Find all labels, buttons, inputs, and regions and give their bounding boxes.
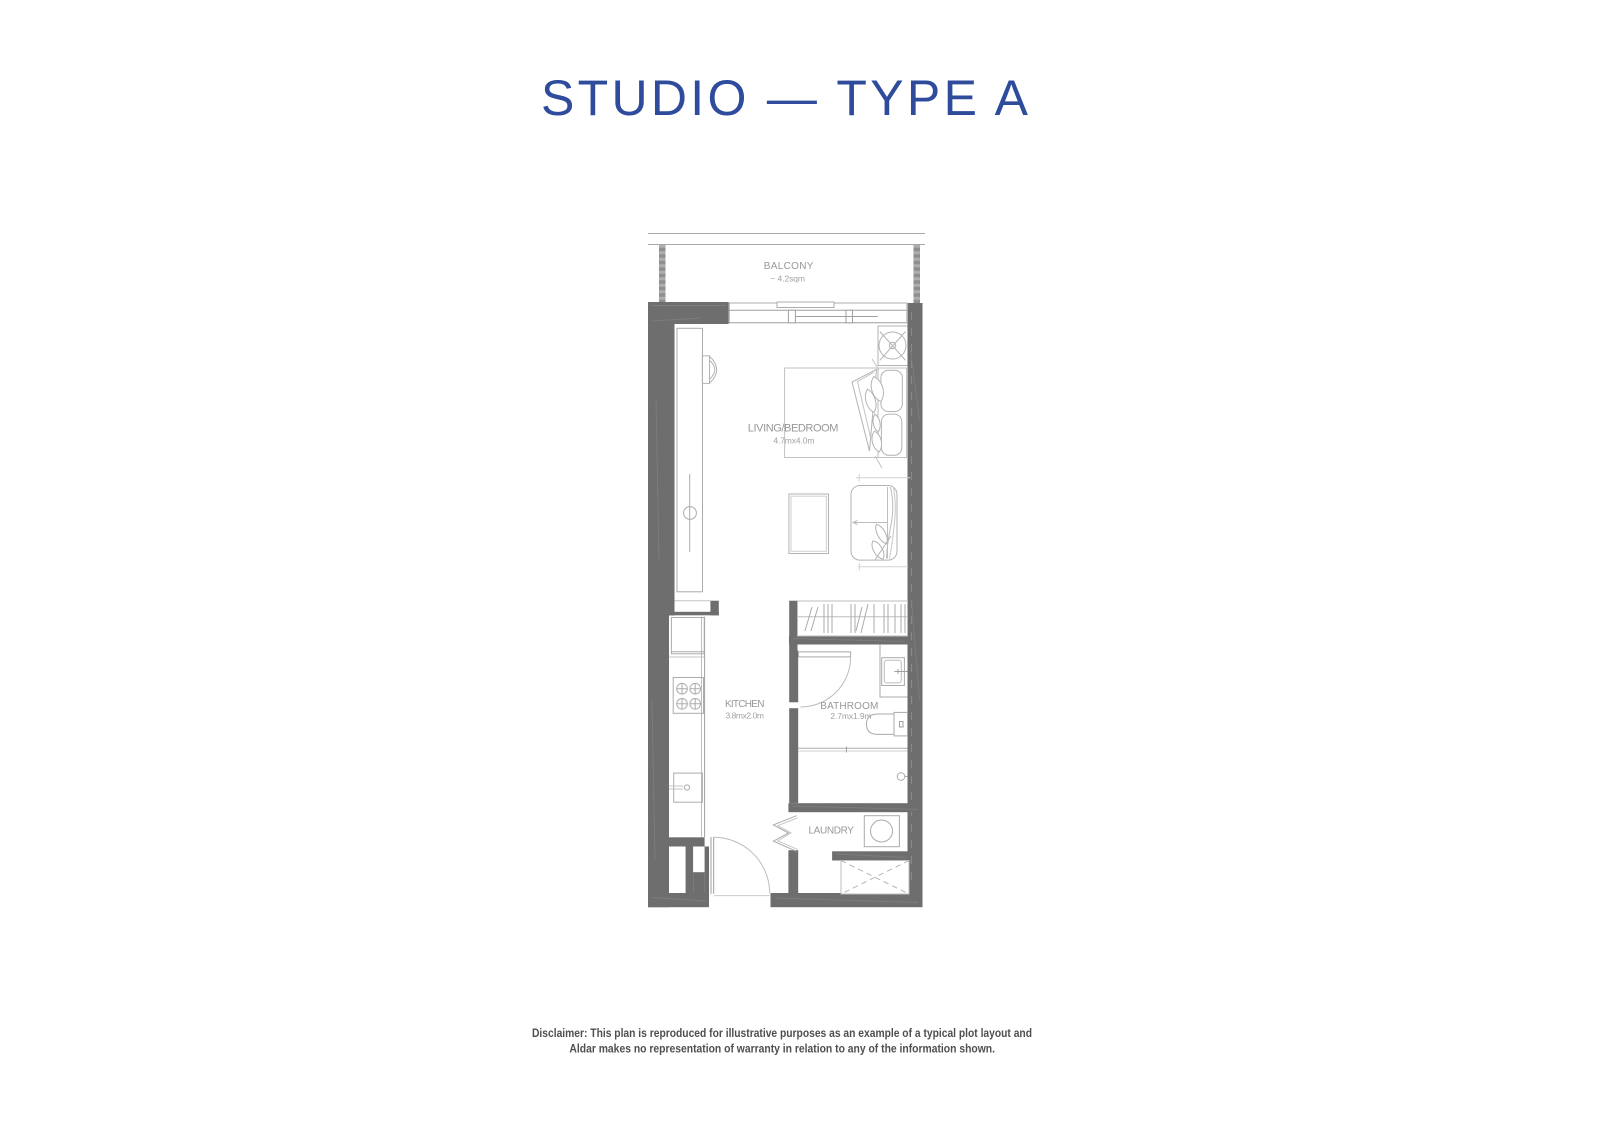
svg-text:~ 4.2sqm: ~ 4.2sqm (770, 274, 805, 284)
svg-text:STUDIO — TYPE A: STUDIO — TYPE A (541, 70, 1029, 126)
svg-text:Disclaimer: This plan is repro: Disclaimer: This plan is reproduced for … (532, 1028, 1032, 1040)
svg-text:LAUNDRY: LAUNDRY (808, 826, 854, 837)
svg-text:4.7mx4.0m: 4.7mx4.0m (773, 436, 814, 446)
svg-text:Aldar makes no representation: Aldar makes no representation of warrant… (569, 1044, 995, 1056)
svg-text:2.7mx1.9m: 2.7mx1.9m (830, 711, 871, 721)
svg-text:BALCONY: BALCONY (764, 261, 814, 272)
svg-text:LIVING/BEDROOM: LIVING/BEDROOM (748, 423, 839, 435)
svg-text:KITCHEN: KITCHEN (725, 699, 765, 710)
svg-text:3.8mx2.0m: 3.8mx2.0m (725, 711, 764, 721)
